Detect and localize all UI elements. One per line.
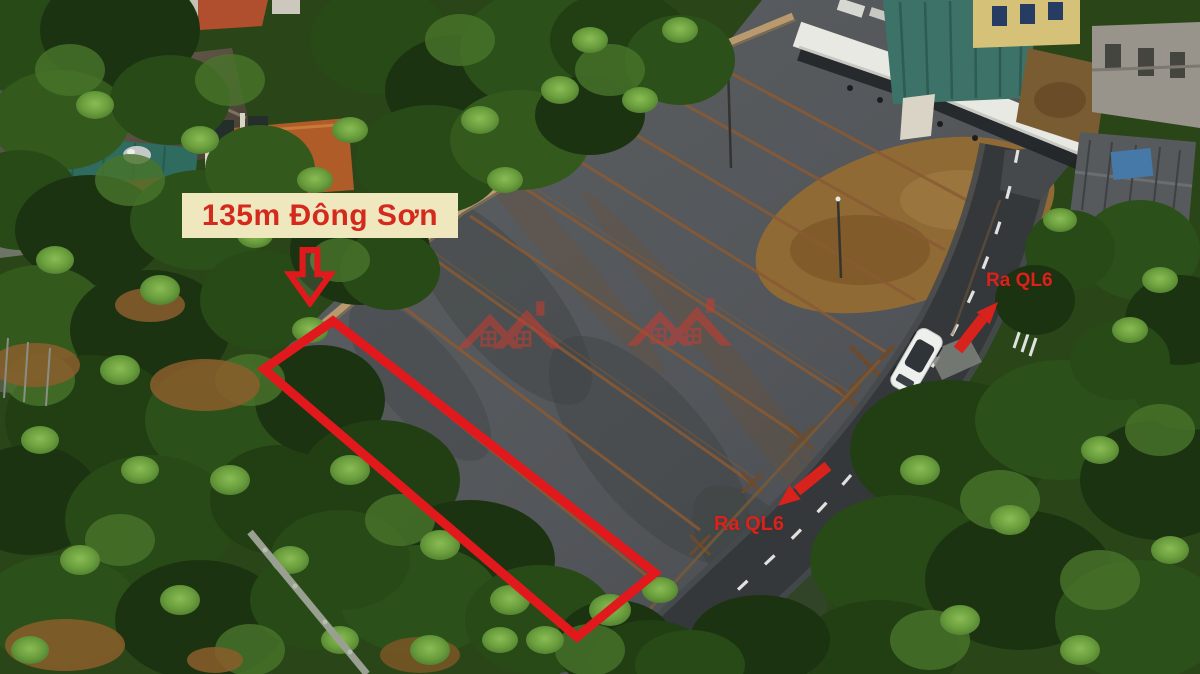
screenshot: 135m Đông Sơn Ra QL6 Ra QL6 [0,0,1200,674]
house-watermark-icon [455,295,563,359]
route-label-top: Ra QL6 [986,270,1053,292]
highlighted-plot-outline [0,0,1200,674]
arrow-down-left-icon [770,458,836,512]
route-label-bottom: Ra QL6 [714,513,784,536]
down-arrow-icon [284,247,336,307]
arrow-up-right-icon [948,298,1008,354]
plot-size-label: 135m Đông Sơn [182,193,458,238]
house-watermark-icon [625,292,733,356]
